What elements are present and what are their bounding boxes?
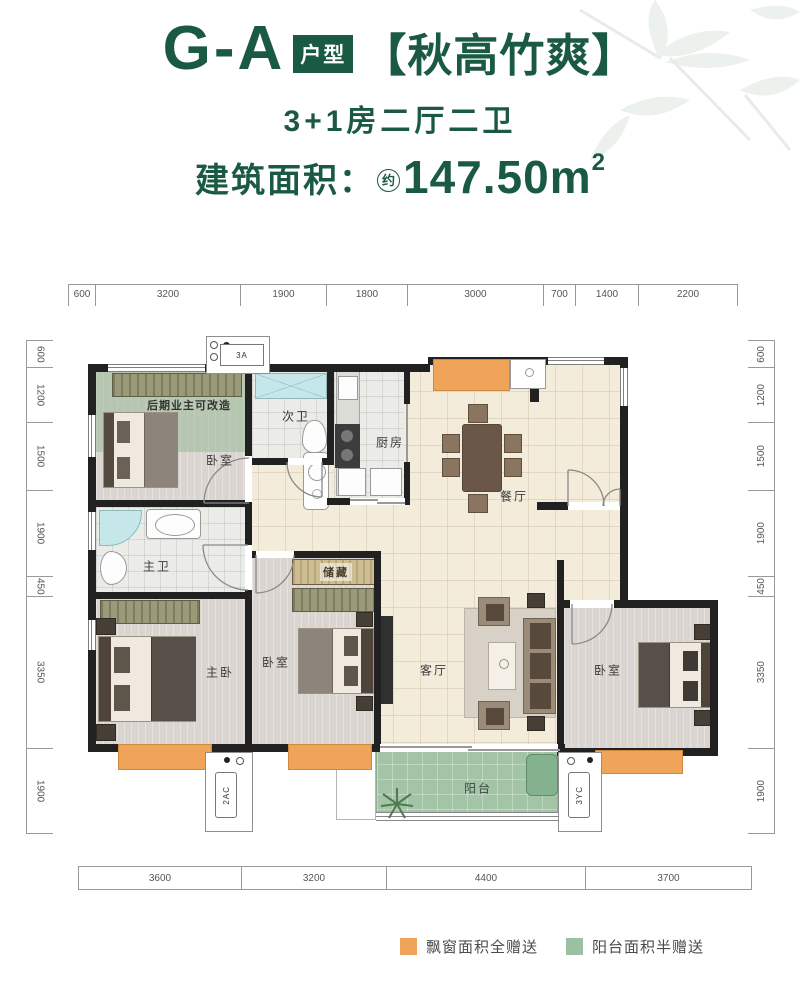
legend-balcony-label: 阳台面积半赠送 [592,936,704,957]
legend-item-balcony: 阳台面积半赠送 [566,936,704,957]
legend-item-bay-window: 飘窗面积全赠送 [400,936,538,957]
living-label: 客厅 [420,662,448,679]
door-arc [256,555,294,593]
second-bath-label: 次卫 [282,408,310,425]
legend-bay-window-label: 飘窗面积全赠送 [426,936,538,957]
door-arc [203,545,248,590]
kitchen-label: 厨房 [376,434,404,451]
entry-door-arc [603,489,620,506]
bedroom-right-label: 卧室 [594,662,622,679]
entry-door-arc [568,470,604,506]
master-bedroom-label: 主卧 [206,664,234,681]
master-bath-label: 主卫 [143,558,171,575]
door-arcs-layer [0,0,800,1001]
dining-label: 餐厅 [500,488,528,505]
floorplan-poster: G-A 户型 【秋高竹爽】 3+1房二厅二卫 建筑面积： 约 147.50m 2… [0,0,800,1001]
plant-icon [381,788,413,818]
legend: 飘窗面积全赠送 阳台面积半赠送 [400,936,704,957]
convertible-note: 后期业主可改造 [147,397,231,413]
balcony-swatch [566,938,583,955]
bedroom-mid-label: 卧室 [262,654,290,671]
door-arc [572,604,612,644]
balcony-label: 阳台 [464,780,492,797]
bay-window-swatch [400,938,417,955]
bedroom-tl-label: 卧室 [206,452,234,469]
door-arc [287,462,322,497]
